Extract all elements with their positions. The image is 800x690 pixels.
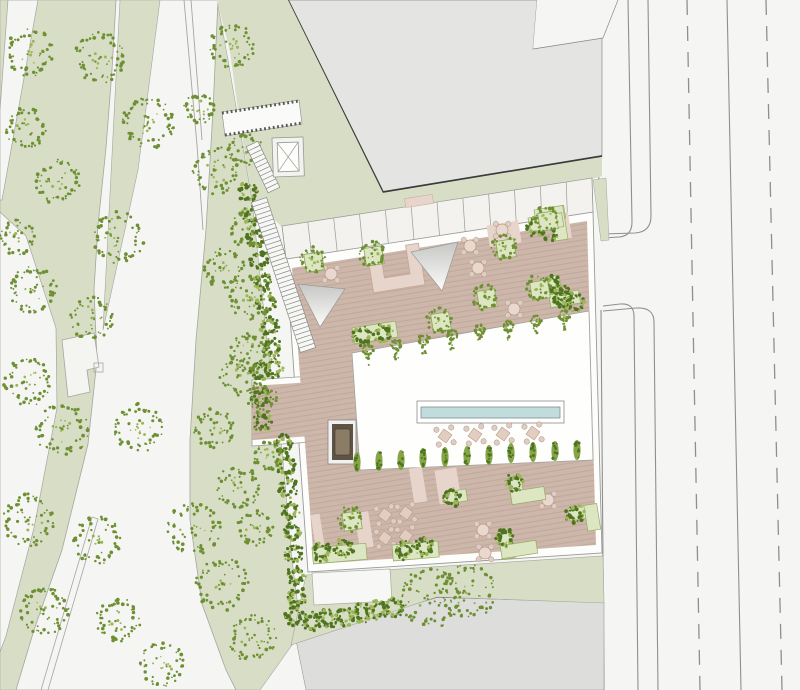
tree-stipple-dot — [234, 355, 236, 357]
tree-stipple-dot — [26, 497, 29, 500]
tree-stipple-dot — [4, 524, 7, 527]
tree-stipple-dot — [394, 339, 397, 342]
table — [479, 547, 491, 559]
bush-stipple-dot — [553, 230, 556, 233]
bush-stipple-dot — [572, 301, 574, 303]
bush-stipple-dot — [494, 537, 497, 540]
tree-stipple-dot — [37, 271, 40, 274]
bush-stipple-dot — [260, 268, 263, 271]
tree-stipple-dot — [259, 384, 262, 387]
tree-stipple-dot — [85, 73, 87, 75]
tree-stipple-dot — [247, 372, 250, 375]
bush-stipple-dot — [290, 504, 292, 506]
tree-stipple-dot — [212, 511, 215, 514]
tree-stipple-dot — [341, 514, 343, 516]
tree-stipple-dot — [235, 40, 238, 43]
tree-stipple-dot — [79, 304, 81, 306]
bush-stipple-dot — [301, 587, 305, 591]
tree-stipple-dot — [250, 297, 253, 300]
tree-stipple-dot — [160, 647, 163, 650]
tree-stipple-dot — [20, 509, 23, 512]
tree-stipple-dot — [211, 521, 214, 524]
tree-stipple-dot — [218, 376, 221, 379]
bush-stipple-dot — [365, 603, 368, 606]
bush-stipple-dot — [302, 624, 304, 626]
tree-stipple-dot — [20, 308, 23, 311]
tree-stipple-dot — [89, 37, 92, 40]
tree-stipple-dot — [208, 118, 210, 120]
tree-stipple-dot — [101, 518, 104, 521]
tree-stipple-dot — [257, 644, 259, 646]
tree-stipple-dot — [204, 416, 206, 418]
tree-stipple-dot — [6, 534, 9, 537]
tree-stipple-dot — [33, 31, 35, 33]
tree-stipple-dot — [419, 577, 422, 580]
tree-stipple-dot — [17, 230, 19, 232]
tree-stipple-dot — [28, 602, 30, 604]
tree-stipple-dot — [22, 600, 25, 603]
tree-stipple-dot — [210, 34, 214, 38]
bush-stipple-dot — [315, 556, 318, 559]
tree-stipple-dot — [408, 587, 412, 591]
tree-stipple-dot — [54, 623, 56, 625]
tree-stipple-dot — [65, 197, 67, 199]
tree-stipple-dot — [207, 570, 210, 573]
tree-stipple-dot — [102, 217, 105, 220]
cypress-tree — [375, 451, 382, 471]
tree-stipple-dot — [422, 340, 423, 341]
tree-stipple-dot — [561, 310, 563, 312]
tree-stipple-dot — [91, 317, 93, 319]
tree-stipple-dot — [20, 231, 23, 234]
tree-stipple-dot — [77, 323, 80, 326]
tree-stipple-dot — [40, 185, 42, 187]
bush-stipple-dot — [562, 294, 564, 296]
bush-stipple-dot — [504, 480, 506, 482]
tree-stipple-dot — [147, 120, 149, 122]
tree-stipple-dot — [503, 323, 505, 325]
tree-stipple-dot — [18, 240, 20, 242]
tree-stipple-dot — [106, 34, 109, 37]
tree-stipple-dot — [22, 381, 25, 384]
tree-stipple-dot — [398, 346, 401, 349]
tree-stipple-dot — [424, 619, 428, 623]
bush-stipple-dot — [330, 614, 333, 617]
bush-stipple-dot — [582, 300, 586, 304]
tree-stipple-dot — [34, 384, 36, 386]
cypress-stipple-dot — [423, 454, 425, 456]
tree-stipple-dot — [191, 105, 193, 107]
tree-stipple-dot — [10, 375, 13, 378]
tree-stipple-dot — [108, 604, 111, 607]
tree-stipple-dot — [243, 35, 245, 37]
tree-stipple-dot — [152, 435, 155, 438]
tree-stipple-dot — [49, 514, 52, 517]
bush-stipple-dot — [426, 542, 428, 544]
tree-stipple-dot — [352, 508, 356, 512]
tree-stipple-dot — [249, 618, 252, 621]
tree-stipple-dot — [545, 217, 547, 219]
tree-stipple-dot — [254, 614, 256, 616]
tree-stipple-dot — [211, 441, 213, 443]
cypress-stipple-dot — [377, 466, 380, 469]
tree-stipple-dot — [432, 329, 434, 331]
tree-stipple-dot — [213, 421, 216, 424]
tree-stipple-dot — [448, 326, 450, 328]
tree-stipple-dot — [224, 429, 226, 431]
tree-stipple-dot — [269, 646, 272, 649]
bush-stipple-dot — [340, 623, 343, 626]
tree-stipple-dot — [211, 113, 214, 116]
bush-stipple-dot — [287, 442, 289, 444]
tree-stipple-dot — [154, 411, 157, 414]
tree-stipple-dot — [105, 231, 108, 234]
bush-stipple-dot — [327, 625, 329, 627]
tree-stipple-dot — [376, 252, 379, 255]
tree-stipple-dot — [64, 608, 68, 612]
tree-stipple-dot — [224, 66, 226, 68]
tree-stipple-dot — [505, 245, 507, 247]
tree-stipple-dot — [19, 402, 22, 405]
tree-stipple-dot — [17, 543, 19, 545]
bush-stipple-dot — [409, 547, 411, 549]
tree-stipple-dot — [55, 426, 57, 428]
tree-stipple-dot — [168, 665, 171, 668]
tree-stipple-dot — [116, 610, 118, 612]
tree-stipple-dot — [64, 420, 66, 422]
tree-stipple-dot — [75, 176, 78, 179]
tree-stipple-dot — [37, 136, 40, 139]
tree-stipple-dot — [241, 228, 243, 230]
tree-stipple-dot — [40, 191, 43, 194]
tree-stipple-dot — [181, 542, 185, 546]
tree-stipple-dot — [79, 446, 82, 449]
tree-stipple-dot — [46, 199, 48, 201]
tree-stipple-dot — [263, 465, 266, 468]
bush-stipple-dot — [313, 545, 317, 549]
tree-stipple-dot — [480, 308, 483, 311]
tree-stipple-dot — [249, 243, 251, 245]
bush-stipple-dot — [352, 334, 355, 337]
tree-stipple-dot — [137, 443, 139, 445]
tree-stipple-dot — [509, 252, 512, 255]
tree-stipple-dot — [225, 363, 227, 365]
tree-stipple-dot — [398, 339, 402, 343]
tree-stipple-dot — [15, 141, 17, 143]
tree-stipple-dot — [193, 525, 195, 527]
tree-stipple-dot — [45, 532, 48, 535]
tree-stipple-dot — [196, 526, 198, 528]
tree-stipple-dot — [275, 399, 278, 402]
tree-stipple-dot — [181, 548, 184, 551]
tree-stipple-dot — [51, 438, 53, 440]
tree-stipple-dot — [227, 146, 230, 149]
tree-stipple-dot — [47, 631, 50, 634]
tree-stipple-dot — [266, 527, 269, 530]
tree-stipple-dot — [82, 67, 85, 70]
tree-stipple-dot — [222, 382, 224, 384]
cypress-stipple-dot — [556, 443, 558, 445]
tree-stipple-dot — [55, 196, 57, 198]
cypress-stipple-dot — [402, 451, 404, 453]
bush-stipple-dot — [274, 305, 277, 308]
tree-stipple-dot — [324, 256, 326, 258]
tree-stipple-dot — [87, 333, 89, 335]
tree-stipple-dot — [143, 670, 146, 673]
tree-stipple-dot — [204, 441, 208, 445]
bush-stipple-dot — [319, 560, 322, 563]
tree-stipple-dot — [26, 529, 29, 532]
tree-stipple-dot — [230, 583, 232, 585]
tree-stipple-dot — [267, 392, 270, 395]
tree-stipple-dot — [245, 27, 248, 30]
tree-stipple-dot — [402, 588, 405, 591]
tree-stipple-dot — [200, 576, 203, 579]
bush-stipple-dot — [458, 495, 461, 498]
cypress-stipple-dot — [577, 441, 580, 444]
tree-stipple-dot — [218, 477, 221, 480]
bush-stipple-dot — [302, 598, 304, 600]
tree-stipple-dot — [250, 350, 252, 352]
tree-stipple-dot — [139, 146, 141, 148]
tree-stipple-dot — [28, 306, 30, 308]
tree-stipple-dot — [123, 413, 125, 415]
tree-stipple-dot — [82, 305, 84, 307]
tree-stipple-dot — [202, 570, 204, 572]
bush-stipple-dot — [285, 516, 289, 520]
tree-stipple-dot — [530, 275, 533, 278]
bush-stipple-dot — [242, 218, 244, 220]
tree-stipple-dot — [203, 118, 205, 120]
tree-stipple-dot — [249, 638, 250, 639]
tree-stipple-dot — [33, 235, 36, 238]
tree-stipple-dot — [155, 644, 157, 646]
tree-stipple-dot — [212, 44, 215, 47]
tree-stipple-dot — [209, 418, 212, 421]
tree-stipple-dot — [2, 240, 4, 242]
tree-stipple-dot — [28, 145, 30, 147]
tree-stipple-dot — [512, 247, 514, 249]
tree-stipple-dot — [92, 312, 94, 314]
tree-stipple-dot — [255, 371, 258, 374]
tree-stipple-dot — [240, 237, 244, 241]
bush-stipple-dot — [285, 434, 288, 437]
tree-stipple-dot — [401, 609, 404, 612]
tree-stipple-dot — [234, 311, 237, 314]
tree-stipple-dot — [220, 26, 224, 30]
tree-stipple-dot — [130, 132, 133, 135]
bush-stipple-dot — [262, 402, 265, 405]
tree-stipple-dot — [115, 419, 117, 421]
tree-stipple-dot — [101, 632, 103, 634]
tree-stipple-dot — [44, 512, 46, 514]
tree-stipple-dot — [464, 569, 467, 572]
tree-stipple-dot — [9, 232, 11, 234]
cypress-tree — [353, 452, 360, 472]
tree-stipple-dot — [84, 558, 86, 560]
bush-stipple-dot — [244, 198, 247, 201]
tree-stipple-dot — [242, 299, 245, 302]
cypress-stipple-dot — [510, 447, 513, 450]
bush-stipple-dot — [508, 486, 510, 488]
tree-stipple-dot — [252, 43, 255, 46]
tree-stipple-dot — [300, 259, 302, 261]
tree-stipple-dot — [226, 286, 229, 289]
tree-stipple-dot — [239, 620, 242, 623]
tree-stipple-dot — [241, 64, 244, 67]
tree-stipple-dot — [49, 181, 51, 183]
tree-stipple-dot — [239, 529, 242, 532]
tree-stipple-dot — [37, 630, 39, 632]
bush-stipple-dot — [265, 417, 268, 420]
bush-stipple-dot — [529, 222, 532, 225]
tree-stipple-dot — [126, 599, 128, 601]
tree-stipple-dot — [233, 490, 235, 492]
tree-stipple-dot — [51, 185, 54, 188]
tree-stipple-dot — [121, 602, 125, 606]
tree-stipple-dot — [233, 630, 236, 633]
bush-stipple-dot — [278, 365, 280, 367]
bush-stipple-dot — [271, 376, 274, 379]
bush-stipple-dot — [258, 305, 261, 308]
tree-stipple-dot — [350, 530, 353, 533]
tree-stipple-dot — [195, 506, 198, 509]
tree-stipple-dot — [42, 588, 45, 591]
tree-stipple-dot — [42, 395, 45, 398]
bush-stipple-dot — [453, 487, 455, 489]
tree-stipple-dot — [256, 402, 258, 404]
tree-stipple-dot — [138, 230, 140, 232]
tree-stipple-dot — [61, 597, 63, 599]
tree-stipple-dot — [261, 617, 263, 619]
tree-stipple-dot — [70, 169, 73, 172]
poplar-shadow-dot — [367, 357, 370, 360]
table — [325, 268, 337, 280]
tree-stipple-dot — [262, 513, 264, 515]
tree-stipple-dot — [259, 374, 262, 377]
tree-stipple-dot — [230, 157, 232, 159]
tree-stipple-dot — [203, 266, 205, 268]
cypress-stipple-dot — [532, 442, 534, 444]
tree-stipple-dot — [77, 553, 80, 556]
tree-stipple-dot — [544, 207, 547, 210]
poplar-shadow-dot — [394, 353, 397, 356]
tree-stipple-dot — [485, 586, 487, 588]
tree-stipple-dot — [254, 336, 257, 339]
tree-stipple-dot — [472, 613, 475, 616]
tree-stipple-dot — [9, 125, 12, 128]
tree-stipple-dot — [67, 608, 69, 610]
tree-stipple-dot — [184, 536, 186, 538]
tree-stipple-dot — [26, 624, 28, 626]
tree-stipple-dot — [371, 247, 373, 249]
tree-stipple-dot — [256, 351, 258, 353]
tree-stipple-dot — [238, 159, 240, 161]
tree-stipple-dot — [87, 435, 89, 437]
tree-stipple-dot — [209, 445, 213, 449]
tree-stipple-dot — [26, 596, 29, 599]
tree-stipple-dot — [219, 248, 221, 250]
poplar-shadow-dot — [507, 337, 509, 339]
tree-stipple-dot — [237, 306, 241, 310]
tree-stipple-dot — [239, 481, 242, 484]
tree-stipple-dot — [58, 181, 60, 183]
tree-stipple-dot — [233, 642, 236, 645]
tree-stipple-dot — [377, 262, 379, 264]
tree-stipple-dot — [97, 226, 100, 229]
tree-stipple-dot — [381, 254, 384, 257]
tree-stipple-dot — [107, 76, 109, 78]
tree-stipple-dot — [219, 579, 222, 582]
tree-stipple-dot — [513, 252, 515, 254]
tree-stipple-dot — [428, 317, 430, 319]
tree-stipple-dot — [423, 341, 425, 343]
poplar-shadow-dot — [368, 355, 370, 357]
tree-stipple-dot — [250, 278, 254, 282]
cypress-stipple-dot — [380, 464, 383, 467]
tree-stipple-dot — [57, 624, 60, 627]
tree-stipple-dot — [535, 298, 537, 300]
tree-stipple-dot — [56, 161, 58, 163]
tree-stipple-dot — [311, 256, 314, 259]
tree-stipple-dot — [228, 295, 231, 298]
bush-stipple-dot — [290, 491, 293, 494]
bush-stipple-dot — [387, 610, 389, 612]
bush-stipple-dot — [511, 534, 514, 537]
tree-stipple-dot — [137, 408, 140, 411]
bush-stipple-dot — [507, 474, 510, 477]
tree-stipple-dot — [234, 279, 237, 282]
tree-stipple-dot — [226, 413, 229, 416]
tree-stipple-dot — [537, 276, 539, 278]
tree-stipple-dot — [90, 529, 92, 531]
cypress-tree — [419, 448, 426, 468]
tree-stipple-dot — [268, 620, 270, 622]
tree-stipple-dot — [42, 613, 44, 615]
bush-stipple-dot — [258, 427, 260, 429]
tree-stipple-dot — [12, 138, 15, 141]
tree-stipple-dot — [148, 127, 151, 130]
tree-stipple-dot — [28, 34, 31, 37]
tree-stipple-dot — [100, 541, 103, 544]
tree-stipple-dot — [179, 658, 181, 660]
tree-stipple-dot — [542, 277, 544, 279]
tree-stipple-dot — [359, 512, 361, 514]
bush-stipple-dot — [284, 535, 287, 538]
tree-stipple-dot — [514, 242, 517, 245]
tree-stipple-dot — [170, 668, 173, 671]
bush-stipple-dot — [399, 614, 402, 617]
tree-stipple-dot — [249, 133, 252, 136]
tree-stipple-dot — [108, 60, 110, 62]
tree-stipple-dot — [107, 328, 109, 330]
tree-stipple-dot — [253, 377, 255, 379]
tree-stipple-dot — [149, 442, 151, 444]
tree-stipple-dot — [213, 542, 217, 546]
tree-stipple-dot — [49, 406, 52, 409]
tree-stipple-dot — [111, 36, 114, 39]
tree-stipple-dot — [238, 575, 240, 577]
tree-stipple-dot — [235, 624, 237, 626]
bush-stipple-dot — [544, 236, 547, 239]
tree-stipple-dot — [233, 178, 236, 181]
tree-stipple-dot — [133, 628, 135, 630]
tree-stipple-dot — [237, 243, 240, 246]
tree-stipple-dot — [41, 132, 45, 136]
tree-stipple-dot — [258, 363, 260, 365]
tree-stipple-dot — [167, 672, 170, 675]
tree-stipple-dot — [191, 531, 194, 534]
